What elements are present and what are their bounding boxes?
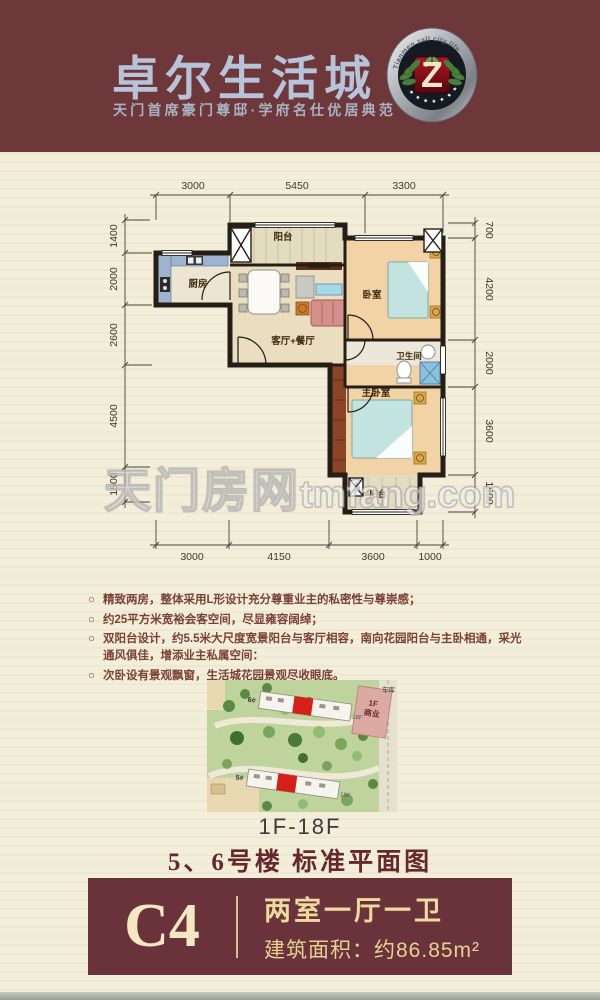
- room-label-balcony-top: 阳台: [273, 231, 293, 243]
- svg-text:4150: 4150: [267, 551, 291, 563]
- logo-letter: Z: [421, 54, 443, 95]
- feature-item: ○双阳台设计，约5.5米大尺度宽景阳台与客厅相容，南向花园阳台与主卧相通，采光通…: [88, 631, 524, 664]
- building-6-label: 6#: [247, 697, 256, 705]
- room-label-living: 客厅+餐厅: [270, 335, 315, 347]
- svg-text:1400: 1400: [108, 224, 120, 248]
- room-label-master: 主卧室: [362, 387, 391, 399]
- highlighted-unit: [276, 773, 297, 792]
- toilet: [397, 361, 411, 379]
- svg-text:3300: 3300: [392, 180, 416, 192]
- svg-text:5450: 5450: [285, 180, 309, 192]
- feature-item: ○约25平方米宽裕会客空间，尽显雍容阔绰；: [88, 612, 524, 629]
- siteplan-map: 1F 商业 车库 6# 18F 5# 18F: [207, 680, 397, 812]
- card-divider: [236, 896, 238, 958]
- highlighted-unit: [292, 696, 313, 715]
- svg-text:4200: 4200: [483, 277, 495, 301]
- unit-code: C4: [88, 891, 236, 962]
- siteplan-garage-label: 车库: [382, 685, 396, 694]
- building-5-label: 5#: [235, 774, 244, 782]
- unit-layout: 两室一厅一卫: [264, 889, 480, 928]
- header-banner: 卓尔生活城 天门首席豪门尊邸·学府名仕优居典范 Tianmen zall cit…: [0, 0, 600, 152]
- svg-text:700: 700: [483, 221, 495, 239]
- unit-card: C4 两室一厅一卫 建筑面积：约86.85m²: [88, 878, 512, 975]
- siteplan-commercial-label-1: 1F: [368, 698, 379, 708]
- dining-table: [248, 270, 280, 314]
- room-label-bedroom: 卧室: [362, 289, 382, 301]
- watermark: 天门房网tmfang.com: [104, 452, 515, 521]
- room-label-kitchen: 厨房: [188, 278, 207, 290]
- feature-list: ○精致两房，整体采用L形设计充分尊重业主的私密性与尊崇感； ○约25平方米宽裕会…: [88, 592, 524, 687]
- svg-text:3600: 3600: [361, 551, 385, 563]
- floors-range-label: 1F-18F: [0, 814, 600, 840]
- svg-text:3000: 3000: [181, 180, 205, 192]
- svg-text:2000: 2000: [108, 267, 120, 291]
- unit-area: 建筑面积：约86.85m²: [264, 934, 480, 964]
- brand-logo-icon: Tianmen zall city life Z ★ ★ ★ ★ ★ ★ ★: [384, 24, 480, 124]
- brand-title: 卓尔生活城: [112, 40, 377, 109]
- svg-text:3000: 3000: [180, 551, 204, 563]
- feature-item: ○精致两房，整体采用L形设计充分尊重业主的私密性与尊崇感；: [88, 592, 524, 609]
- svg-text:2600: 2600: [108, 323, 120, 347]
- brand-subtitle: 天门首席豪门尊邸·学府名仕优居典范: [113, 100, 396, 120]
- room-label-bathroom: 卫生间: [396, 351, 422, 361]
- sofa: [311, 300, 345, 326]
- svg-text:2000: 2000: [483, 351, 495, 375]
- bottom-strip: [0, 992, 600, 1000]
- flyer-page: 卓尔生活城 天门首席豪门尊邸·学府名仕优居典范 Tianmen zall cit…: [0, 0, 600, 1000]
- sink: [421, 345, 435, 359]
- svg-text:3600: 3600: [483, 419, 495, 443]
- plan-title: 5、6号楼 标准平面图: [0, 842, 600, 878]
- svg-text:4500: 4500: [108, 404, 120, 428]
- svg-text:1000: 1000: [418, 551, 442, 563]
